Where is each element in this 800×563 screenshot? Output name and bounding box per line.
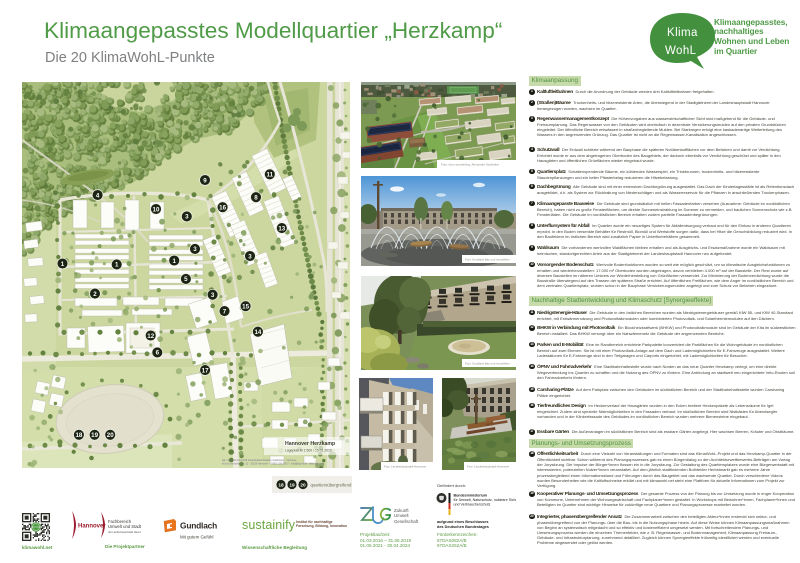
svg-text:1: 1 bbox=[61, 261, 65, 268]
svg-text:15: 15 bbox=[242, 304, 249, 311]
svg-text:9: 9 bbox=[203, 177, 207, 184]
svg-text:7: 7 bbox=[223, 308, 227, 315]
svg-text:11: 11 bbox=[267, 172, 274, 179]
svg-text:Bundesministerium: Bundesministerium bbox=[454, 494, 488, 498]
svg-text:für Umwelt, Naturschutz, nukle: für Umwelt, Naturschutz, nukleare Sicher… bbox=[454, 498, 517, 502]
svg-text:4: 4 bbox=[96, 192, 100, 199]
svg-text:Hannover: Hannover bbox=[78, 524, 106, 530]
svg-text:19: 19 bbox=[289, 482, 295, 488]
svg-text:Foto: Landeshauptstadt Hannove: Foto: Landeshauptstadt Hannover bbox=[467, 465, 509, 469]
svg-text:Foto: Landeshauptstadt Hannove: Foto: Landeshauptstadt Hannover bbox=[384, 465, 426, 469]
svg-text:Gundlach: Gundlach bbox=[180, 521, 217, 531]
svg-text:18: 18 bbox=[75, 432, 82, 439]
svg-text:3: 3 bbox=[193, 246, 197, 253]
svg-text:und Verbraucherschutz: und Verbraucherschutz bbox=[454, 502, 491, 506]
svg-text:Hannover Herzkamp: Hannover Herzkamp bbox=[285, 441, 335, 447]
svg-text:1: 1 bbox=[172, 258, 176, 265]
svg-text:19: 19 bbox=[91, 432, 98, 439]
svg-text:Kurt-Schumacher-Str. 32 · 3015: Kurt-Schumacher-Str. 32 · 30159 Hannover… bbox=[222, 463, 325, 466]
svg-text:14: 14 bbox=[254, 329, 261, 336]
svg-text:8: 8 bbox=[254, 195, 258, 202]
svg-text:10: 10 bbox=[153, 206, 160, 213]
svg-text:Mit gutem Gefühl: Mit gutem Gefühl bbox=[180, 535, 213, 540]
svg-text:2: 2 bbox=[93, 291, 97, 298]
svg-text:1: 1 bbox=[115, 262, 119, 269]
svg-text:Umwelt und Stadtgrün: Umwelt und Stadtgrün bbox=[108, 524, 141, 529]
svg-text:quartiersübergreifend: quartiersübergreifend bbox=[311, 482, 352, 487]
svg-text:3: 3 bbox=[248, 253, 252, 260]
svg-text:18: 18 bbox=[278, 482, 284, 488]
svg-text:der Landeshauptstadt Hannover: der Landeshauptstadt Hannover bbox=[108, 530, 141, 534]
svg-text:16: 16 bbox=[219, 205, 226, 212]
svg-text:6: 6 bbox=[156, 350, 160, 357]
svg-text:13: 13 bbox=[278, 225, 285, 232]
svg-text:3: 3 bbox=[211, 292, 215, 299]
svg-text:Foto: büro wunderling, Alexand: Foto: büro wunderling, Alexander Schlich… bbox=[441, 163, 499, 167]
svg-text:5: 5 bbox=[184, 276, 188, 283]
svg-text:Lageplan M 1:500 / 15.01.2020: Lageplan M 1:500 / 15.01.2020 bbox=[285, 449, 332, 453]
svg-text:20: 20 bbox=[107, 432, 114, 439]
svg-text:Foto: Gundlach Bau und Immobil: Foto: Gundlach Bau und Immobilien bbox=[465, 258, 510, 262]
svg-text:Foto: Gundlach Bau und Immobil: Foto: Gundlach Bau und Immobilien bbox=[465, 362, 510, 366]
svg-text:3: 3 bbox=[185, 214, 189, 221]
svg-text:12: 12 bbox=[147, 333, 154, 340]
svg-text:20: 20 bbox=[300, 482, 306, 488]
svg-text:17: 17 bbox=[202, 367, 209, 374]
